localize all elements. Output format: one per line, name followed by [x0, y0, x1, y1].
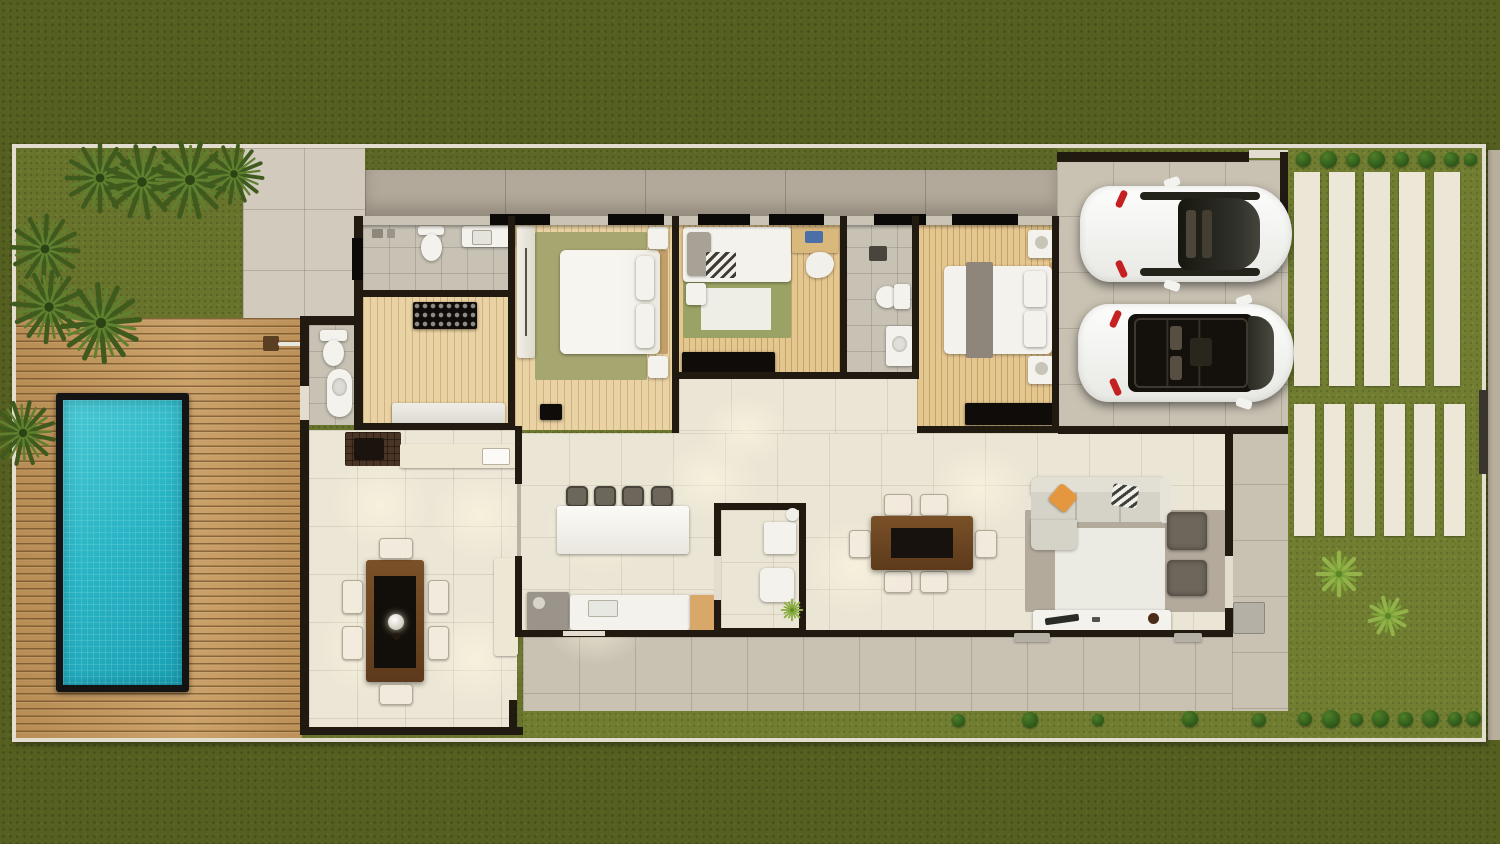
hedge-bush	[1368, 151, 1385, 168]
bedroom2-rug-inner	[701, 288, 771, 330]
dining-chair	[884, 571, 912, 593]
hedge-bush	[1022, 712, 1038, 728]
bar-stool	[622, 486, 644, 507]
wall	[300, 430, 309, 735]
living-ottoman	[1167, 512, 1207, 550]
table-decor	[393, 633, 400, 640]
door-mat	[1174, 633, 1202, 642]
bed3-pillow	[1024, 311, 1046, 347]
paving-slab	[1399, 172, 1425, 386]
south-door-frame	[563, 631, 605, 636]
south-wall	[515, 630, 1233, 637]
wall	[509, 700, 517, 735]
partition	[363, 290, 513, 297]
bed1-pouf	[540, 404, 562, 420]
hedge-bush	[1398, 712, 1413, 727]
hedge-bush	[1182, 711, 1198, 727]
bed3-pillow	[1024, 271, 1046, 307]
paving-slab	[1294, 172, 1320, 386]
dining-chair	[849, 530, 871, 558]
hedge-bush	[952, 714, 965, 727]
nightstand	[686, 283, 706, 305]
car1-seats	[1186, 210, 1196, 258]
terrace-chair	[379, 538, 413, 559]
window	[352, 238, 363, 280]
wall-stub	[515, 426, 522, 484]
wardrobe-handle	[525, 248, 527, 336]
bar-stool	[566, 486, 588, 507]
closet-dresser	[413, 302, 477, 329]
dining-chair	[884, 494, 912, 516]
vanity-sink	[472, 230, 492, 245]
hedge-bush	[1092, 714, 1104, 726]
hedge-bush	[1346, 153, 1360, 167]
partition	[840, 216, 847, 379]
dining-table-runner	[891, 528, 953, 558]
paving-slab	[1364, 172, 1390, 386]
car2-seat	[1170, 326, 1182, 350]
terrace-chair	[342, 580, 363, 614]
gate-post	[1479, 390, 1488, 474]
table-lamp	[388, 614, 404, 630]
cooktop	[588, 600, 618, 617]
dining-chair	[975, 530, 997, 558]
floor-plan-render	[0, 0, 1500, 844]
hedge-bush	[1464, 153, 1477, 166]
shower-fitting	[372, 229, 383, 238]
hedge-bush	[1448, 712, 1462, 726]
sofa-chaise	[1031, 520, 1077, 550]
hedge-bush	[1252, 713, 1266, 727]
window	[608, 214, 664, 225]
toilet-bowl	[421, 234, 442, 261]
pool-water-texture	[63, 400, 182, 685]
living-ottoman	[1167, 560, 1207, 596]
wall-stub	[515, 556, 522, 637]
hedge-bush	[1322, 710, 1340, 728]
nightstand-lamp	[1035, 362, 1048, 375]
bed1-pillow	[636, 304, 654, 348]
zigzag-pillow	[1111, 483, 1140, 508]
partition	[508, 216, 515, 430]
wall	[300, 727, 523, 735]
partition	[679, 372, 845, 379]
shower-drain	[869, 246, 887, 261]
paving-slab	[1294, 404, 1315, 536]
closet-south-wall	[358, 423, 515, 430]
hedge-bush	[1444, 152, 1459, 167]
paving-slab	[1329, 172, 1355, 386]
window	[490, 214, 550, 225]
potted-plant	[778, 596, 806, 624]
partition	[672, 216, 679, 433]
hedge-bush	[1350, 713, 1363, 726]
hedge-bush	[1418, 151, 1435, 168]
partition	[912, 216, 919, 379]
door-mat	[1014, 633, 1050, 642]
paving-slab	[1434, 172, 1460, 386]
terrace-chair	[428, 626, 449, 660]
hedge-bush	[1296, 152, 1311, 167]
paving-slab	[1414, 404, 1435, 536]
window	[769, 214, 824, 225]
terrace-chair	[379, 684, 413, 705]
kitchen-island	[557, 506, 689, 554]
street-sidewalk	[1488, 150, 1500, 740]
nightstand-lamp	[1035, 236, 1048, 249]
hedge-bush	[1320, 151, 1337, 168]
toilet-paper-holder	[786, 508, 799, 521]
star-plant	[1310, 545, 1368, 603]
hedge-bush	[1298, 712, 1312, 726]
car2-console	[1190, 338, 1212, 366]
bed3-wardrobe	[965, 403, 1057, 425]
decor-pot	[1148, 613, 1159, 624]
bar-stool	[651, 486, 673, 507]
window	[952, 214, 1018, 225]
paving-slab	[1444, 404, 1465, 536]
paving-slab	[1354, 404, 1375, 536]
terrace-chair	[428, 580, 449, 614]
dining-chair	[920, 494, 948, 516]
toilet-tank	[894, 284, 910, 309]
hedge-bush	[1422, 710, 1439, 727]
paving-slab	[1384, 404, 1405, 536]
grill-grate	[354, 438, 384, 460]
bed2-zigzag-throw	[706, 252, 736, 278]
ac-unit	[1233, 602, 1265, 634]
palm-shrub	[198, 138, 270, 210]
pool-bath-door	[300, 386, 309, 420]
garage-house-wall	[1052, 216, 1059, 433]
garage-bottom-wall	[1195, 426, 1288, 434]
media-remote	[1092, 617, 1100, 622]
terrace-chair	[342, 626, 363, 660]
bar-stool	[594, 486, 616, 507]
kitchen-cabinet-wood	[690, 595, 716, 630]
bed1-pillow	[636, 256, 654, 300]
car2-seat	[1170, 356, 1182, 380]
bed3-runner	[966, 262, 993, 358]
car2-windshield	[1248, 316, 1274, 390]
east-door	[1225, 556, 1233, 608]
terrace-sink	[482, 448, 510, 465]
powder-sink	[764, 522, 796, 554]
pool-shower-post	[263, 336, 279, 351]
window-slot	[517, 484, 521, 556]
hedge-bush	[1466, 711, 1481, 726]
toilet-bowl	[323, 340, 344, 366]
car1-seats	[1202, 210, 1212, 258]
coffee-station-top	[533, 597, 545, 609]
nightstand	[648, 227, 668, 249]
laptop	[805, 231, 823, 243]
partition	[917, 426, 1058, 433]
hedge-bush	[1372, 710, 1389, 727]
partition	[845, 372, 919, 379]
garage-top-beam	[1057, 152, 1249, 162]
shower-fitting	[387, 229, 395, 238]
coffee-station	[527, 592, 569, 630]
sink-basin	[332, 378, 347, 396]
dining-chair	[920, 571, 948, 593]
window	[698, 214, 750, 225]
nightstand	[648, 356, 668, 378]
vanity-sink	[892, 336, 907, 352]
paving-slab	[1324, 404, 1345, 536]
hedge-bush	[1394, 152, 1409, 167]
powder-door	[714, 556, 721, 600]
